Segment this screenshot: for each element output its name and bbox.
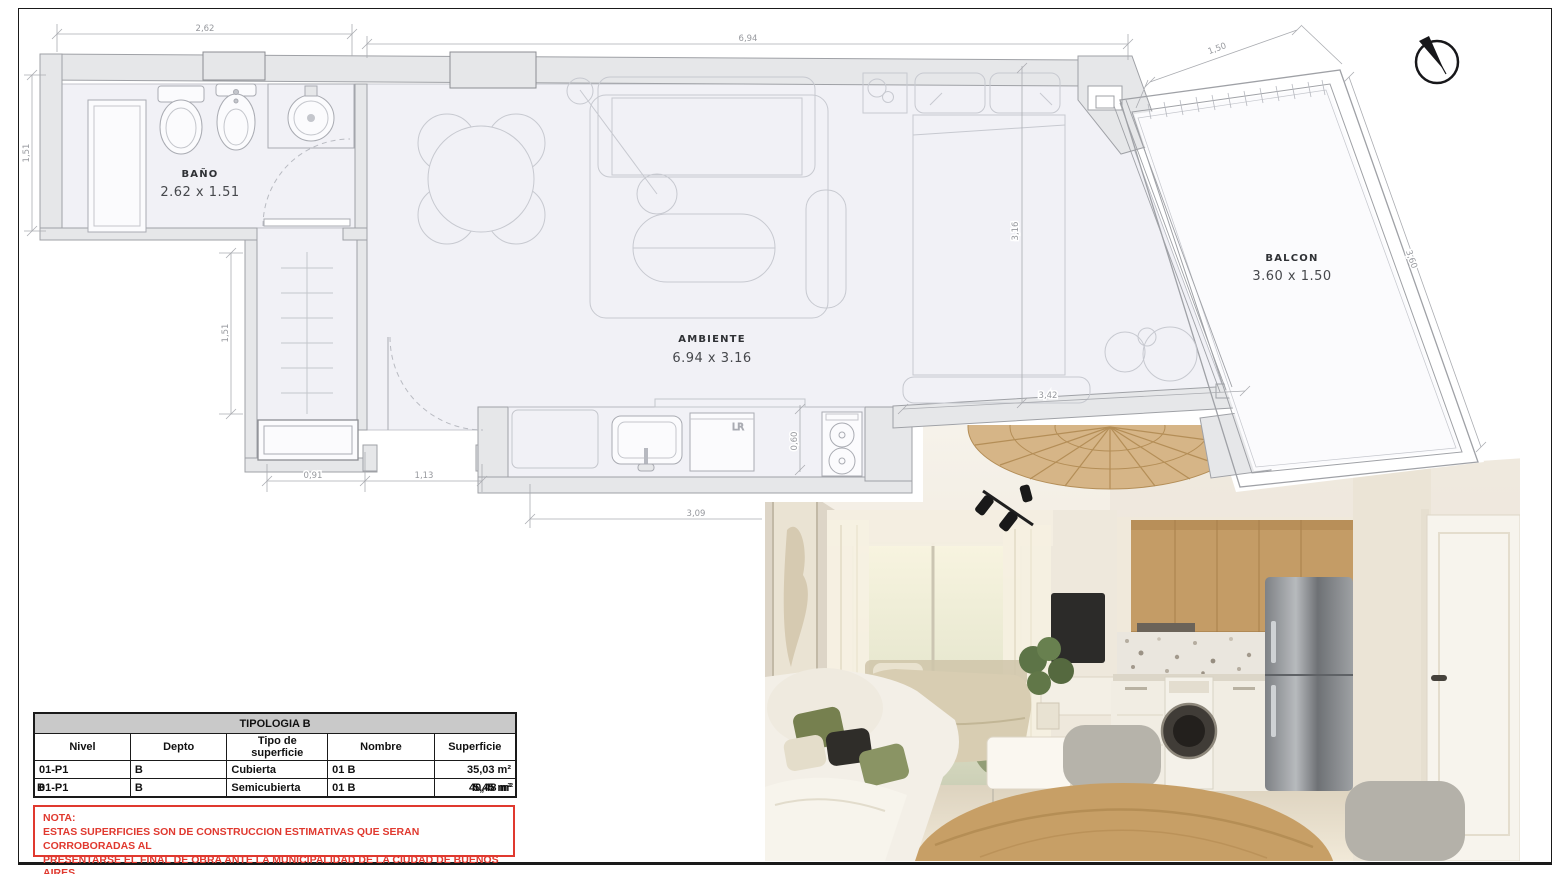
- shower: [88, 100, 146, 232]
- washer-position: [690, 413, 754, 471]
- col-nivel: Nivel: [34, 734, 130, 761]
- cell: 01-P1: [34, 761, 130, 779]
- dim-counter-depth: 0,60: [790, 432, 800, 451]
- dim-closet-depth: 1,51: [221, 324, 231, 343]
- dim-balcony-depth: 1,50: [1207, 41, 1228, 57]
- bathroom-door-leaf: [264, 219, 350, 226]
- room-dims-ambiente: 6.94 x 3.16: [672, 351, 751, 366]
- dim-room-bottom: 3,42: [1039, 391, 1058, 401]
- total-value: 40,48 m²: [469, 782, 513, 794]
- dim-bottom-a: 0,91: [304, 471, 323, 481]
- washer-label: LR: [732, 422, 744, 433]
- areas-total-row: B 40,48 m²: [33, 780, 517, 796]
- cell: B: [130, 761, 226, 779]
- toilet: [158, 86, 204, 154]
- col-tipo: Tipo de superficie: [227, 734, 328, 761]
- dim-bath-width: 2,62: [196, 24, 215, 34]
- room-dims-bano: 2.62 x 1.51: [160, 185, 239, 200]
- note-line-1: ESTAS SUPERFICIES SON DE CONSTRUCCION ES…: [43, 826, 505, 854]
- dining-table-plan: [428, 126, 534, 232]
- room-dims-balcon: 3.60 x 1.50: [1252, 269, 1331, 284]
- note-line-2: PRESENTARSE EL FINAL DE OBRA ANTE LA MUN…: [43, 854, 505, 874]
- col-nombre: Nombre: [328, 734, 434, 761]
- col-depto: Depto: [130, 734, 226, 761]
- note-title: NOTA:: [43, 812, 505, 826]
- stove: [822, 412, 862, 476]
- cell: 35,03 m²: [434, 761, 516, 779]
- plan-sheet: LR: [0, 0, 1562, 874]
- table-row: 01-P1 B Cubierta 01 B 35,03 m²: [34, 761, 516, 779]
- bidet: [216, 84, 256, 150]
- room-label-balcon: BALCON: [1265, 253, 1318, 264]
- dim-bath-depth: 1,51: [22, 144, 32, 163]
- cell: Cubierta: [227, 761, 328, 779]
- cell: 01 B: [328, 761, 434, 779]
- dim-kitchen-width: 3,09: [687, 509, 706, 519]
- areas-table-header-row: Nivel Depto Tipo de superficie Nombre Su…: [34, 734, 516, 761]
- north-compass-icon: [1416, 36, 1458, 83]
- col-superficie: Superficie: [434, 734, 516, 761]
- room-label-bano: BAÑO: [181, 167, 218, 180]
- dim-room-width: 6,94: [739, 34, 758, 44]
- dim-room-depth: 3,16: [1011, 222, 1021, 241]
- areas-table-title: TIPOLOGIA B: [34, 713, 516, 734]
- total-label: B: [37, 782, 45, 794]
- room-label-ambiente: AMBIENTE: [678, 334, 746, 345]
- note-box: NOTA: ESTAS SUPERFICIES SON DE CONSTRUCC…: [33, 805, 515, 857]
- dim-bottom-b: 1,13: [415, 471, 434, 481]
- kitchen-sink: [612, 416, 682, 471]
